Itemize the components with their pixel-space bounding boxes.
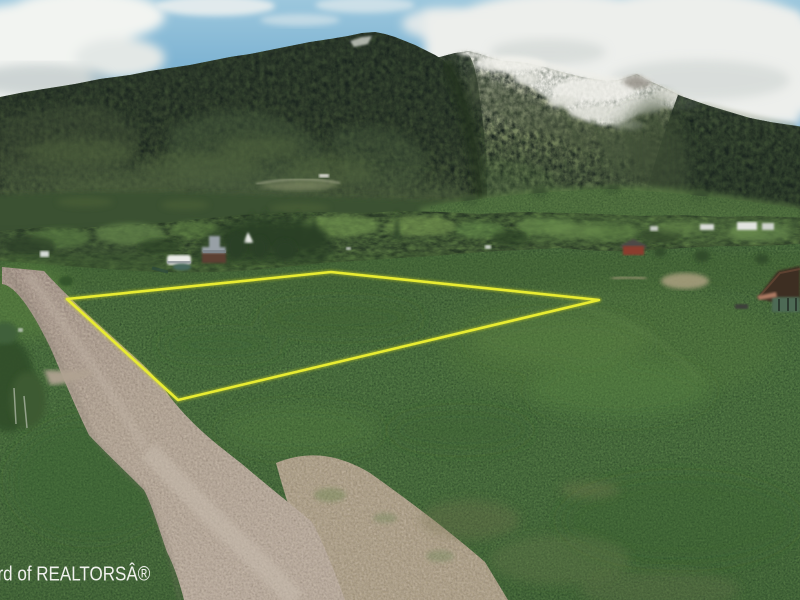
svg-text:rd of REALTORSÂ®: rd of REALTORSÂ® [0,562,150,585]
